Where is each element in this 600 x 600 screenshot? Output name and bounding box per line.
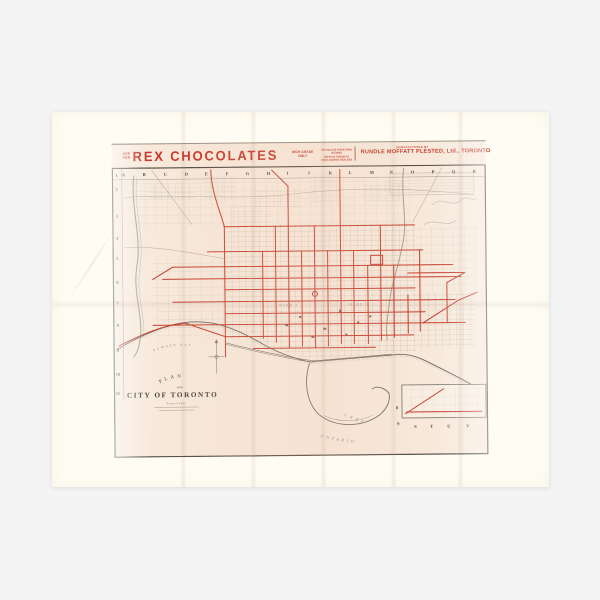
grid-number: 1 (115, 173, 117, 178)
grid-letter: C (164, 172, 167, 177)
grid-letter: U (447, 424, 451, 429)
grid-row-numbers: 1 2 3 4 5 6 7 8 9 10 11 (114, 173, 121, 396)
grid-number: 11 (116, 391, 120, 396)
grid-letter: K (329, 170, 333, 175)
grid-number: 3 (116, 214, 119, 219)
svg-text:ONTARIO: ONTARIO (320, 433, 356, 445)
title-of-the: of the (177, 386, 184, 389)
map-title: PLAN of the CITY OF TORONTO Scale of Fee… (127, 374, 219, 410)
svg-text:PLAN: PLAN (158, 375, 184, 385)
brand-title: REX CHOCOLATES (133, 147, 279, 164)
grid-letter: I (287, 171, 289, 176)
compass-icon (208, 340, 224, 374)
grid-letter: S (414, 424, 417, 429)
grid-letter: A (122, 172, 126, 177)
grid-number: 2 (115, 187, 117, 192)
art-print-paper: ASK FOR REX CHOCOLATES HIGH GRADE ONLY O… (52, 112, 549, 487)
grid-letter: O (411, 169, 415, 174)
title-city-of-toronto: CITY OF TORONTO (127, 391, 218, 400)
ward-label: WARD 3 (349, 302, 368, 306)
grade-label: HIGH GRADE ONLY (288, 149, 318, 158)
grid-number: 7 (117, 301, 120, 306)
scale-note: Scale of Feet (167, 402, 186, 405)
inset-map (402, 384, 486, 418)
grid-letter: R (473, 169, 477, 174)
toronto-map: A B C D E F G H I J K L M N O P Q (112, 164, 489, 458)
grid-number: 5 (116, 256, 119, 261)
manufacturer-label: MANUFACTURED BY RUNDLE MOFFATT PLESTED, … (361, 146, 465, 156)
grid-letter: D (185, 172, 188, 177)
grid-letter: G (246, 171, 250, 176)
ask-for-label: ASK FOR (123, 153, 131, 161)
ward-label: WARD 4 (279, 303, 298, 307)
svg-text:HUMBER BAY: HUMBER BAY (152, 342, 192, 352)
map-print: ASK FOR REX CHOCOLATES HIGH GRADE ONLY O… (112, 140, 489, 458)
grid-letter: P (432, 169, 435, 174)
grid-letter: Q (452, 169, 456, 174)
grid-letter: B (143, 172, 146, 177)
grid-number: 8 (117, 323, 120, 328)
product-photo-background: ASK FOR REX CHOCOLATES HIGH GRADE ONLY O… (0, 0, 600, 600)
grid-number: 4 (116, 236, 119, 241)
grid-number: 10 (116, 372, 121, 377)
grid-letter: F (226, 171, 229, 176)
fine-print: ON SALE IN THEIR OWN STORES BOTH IN TORO… (320, 148, 354, 162)
grid-letter: M (370, 170, 375, 175)
corner-crease (67, 228, 116, 301)
grid-number: 8 (396, 405, 399, 410)
grid-letter: E (205, 171, 208, 176)
grid-letter: T (430, 424, 433, 429)
header-divider (355, 146, 356, 160)
grid-number: 9 (117, 348, 120, 353)
grid-letter: L (349, 170, 352, 175)
grid-number: 9 (397, 421, 400, 426)
grid-number: 6 (116, 280, 119, 285)
svg-text:LAKE: LAKE (343, 411, 368, 425)
grid-letter: H (267, 171, 271, 176)
grid-letter: V (466, 423, 470, 428)
